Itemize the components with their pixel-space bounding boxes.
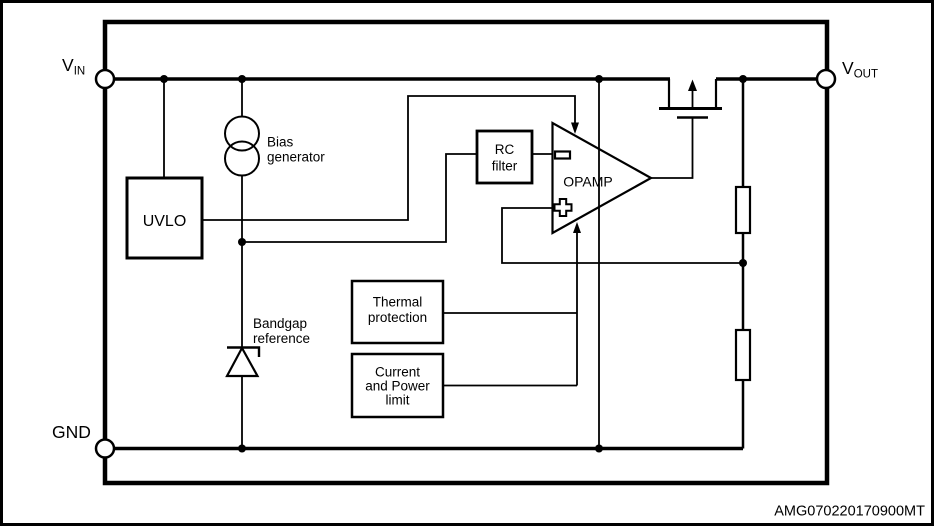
rc-filter-label-line2: filter — [492, 159, 518, 174]
vin-label-main: V — [62, 55, 74, 75]
bandgap-label-line1: Bandgap — [253, 316, 307, 331]
uvlo-label: UVLO — [143, 213, 187, 230]
bias-label-line1: Bias — [267, 135, 294, 150]
resistor-lower — [736, 330, 750, 380]
junction-feedback-node — [739, 259, 747, 267]
opamp-label: OPAMP — [563, 174, 613, 190]
vout-terminal — [817, 70, 835, 88]
current-limit-label-line1: Current — [375, 365, 420, 380]
junction-bias — [238, 75, 246, 83]
ldo-block-diagram: VIN VOUT GND UVLO Bias generator Bandgap… — [0, 0, 934, 526]
thermal-label-line2: protection — [368, 310, 427, 325]
bias-generator-symbol — [225, 117, 259, 176]
gnd-terminal — [96, 440, 114, 458]
vout-label-main: V — [842, 58, 854, 78]
rc-filter-label-line1: RC — [495, 142, 515, 157]
resistor-upper — [736, 187, 750, 233]
junction-vout-node — [739, 75, 747, 83]
junction-supply-gnd — [595, 445, 603, 453]
diagram-canvas: VIN VOUT GND UVLO Bias generator Bandgap… — [0, 0, 934, 526]
watermark-code: AMG070220170900MT — [774, 504, 925, 520]
gnd-label: GND — [52, 422, 91, 442]
thermal-protection-label: Thermal protection — [368, 295, 427, 326]
current-limit-label-line3: limit — [386, 393, 410, 408]
current-limit-label-line2: and Power — [365, 379, 430, 394]
bandgap-reference-label: Bandgap reference — [253, 316, 310, 346]
junction-bandgap-gnd — [238, 445, 246, 453]
vout-label-sub: OUT — [854, 69, 878, 81]
opamp-minus-icon — [555, 152, 570, 159]
vin-terminal — [96, 70, 114, 88]
rc-filter-block — [477, 131, 532, 183]
junction-supply-top — [595, 75, 603, 83]
bias-label-line2: generator — [267, 150, 325, 165]
bandgap-label-line2: reference — [253, 331, 310, 346]
junction-bandgap-tap — [238, 238, 246, 246]
thermal-label-line1: Thermal — [373, 295, 423, 310]
vin-label-sub: IN — [74, 66, 86, 78]
junction-uvlo — [160, 75, 168, 83]
rc-filter-label: RC filter — [492, 142, 518, 174]
